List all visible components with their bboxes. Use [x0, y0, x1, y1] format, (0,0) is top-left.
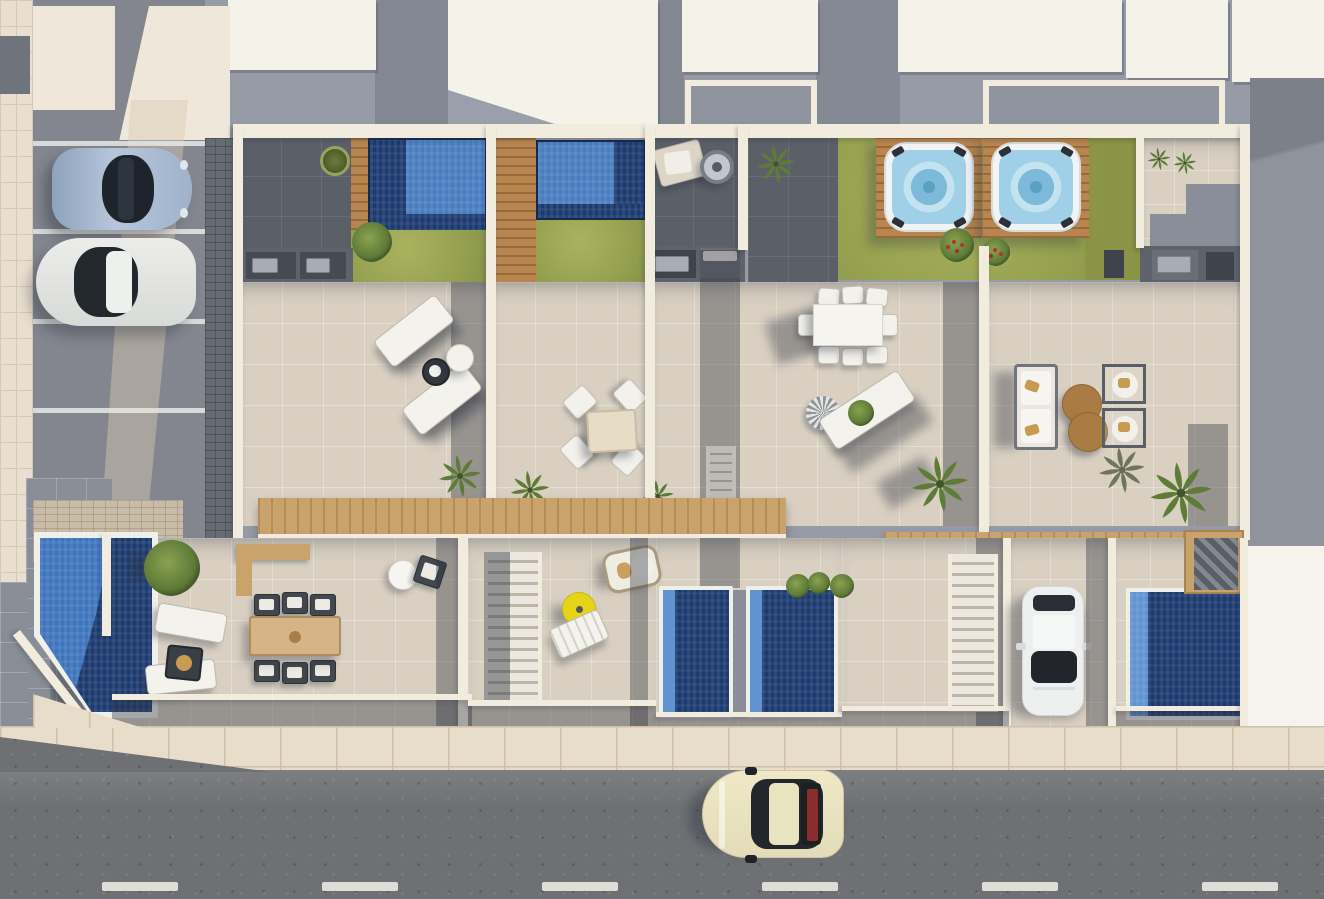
utility-box	[0, 36, 30, 94]
parapet-wall-short	[738, 124, 748, 250]
pool-sunlit-edge	[663, 590, 675, 714]
roof-gap-shadow	[656, 0, 684, 140]
car-rear-window	[1033, 595, 1075, 611]
chair-pillow	[1118, 378, 1130, 388]
lane-marking-dash	[542, 882, 618, 891]
bbq-cabinet	[1152, 250, 1198, 280]
pool-shadow-water	[538, 204, 644, 218]
car-red-panel	[807, 789, 818, 841]
car-windshield	[1031, 651, 1077, 683]
terrace-table	[586, 409, 638, 454]
plunge-pool	[1130, 592, 1240, 716]
garden-wall	[102, 532, 111, 636]
bbq-cabinet	[246, 252, 296, 279]
chair-cushion	[259, 665, 274, 676]
framed-lounge-chair	[1102, 364, 1146, 404]
bbq-grill-top	[1157, 256, 1191, 273]
framed-lounge-chair	[1102, 408, 1146, 448]
roof-gap-shadow	[375, 0, 449, 140]
chair-cushion	[315, 665, 330, 676]
corner-wood-planter	[236, 544, 252, 596]
staircase	[948, 554, 998, 712]
table-center	[712, 162, 722, 172]
pool-sunlit-edge	[750, 590, 762, 714]
pavement-light-patch	[33, 6, 115, 110]
parking-stall-line	[33, 141, 205, 146]
table-bowl	[289, 631, 301, 643]
unit2-pool-deck	[494, 136, 536, 284]
dining-chair	[866, 346, 888, 364]
outdoor-sofa	[1014, 364, 1058, 450]
south-wall-shadow	[112, 700, 472, 726]
car-headlight	[180, 160, 188, 170]
car-hood-line	[1033, 687, 1075, 690]
rose-flowers	[993, 248, 997, 252]
roof-block	[898, 0, 1122, 72]
pouf	[446, 344, 474, 372]
shrub	[352, 222, 392, 262]
roof-block	[682, 0, 818, 72]
bbq-cabinet	[300, 252, 346, 279]
dining-table-white	[813, 304, 883, 346]
chair-cushion	[287, 667, 302, 678]
palm-plant	[436, 452, 484, 500]
gray-step-paving	[1150, 214, 1240, 250]
parapet-wall	[233, 124, 243, 540]
outer-wall-lower	[1240, 538, 1248, 728]
lane-marking-dash	[1202, 882, 1278, 891]
corner-wood-stair	[1184, 530, 1244, 594]
garden-dining-chair	[254, 594, 280, 616]
hot-tub-deck	[876, 136, 982, 238]
wall-shadow-band	[700, 538, 740, 588]
chair-pillow	[1118, 422, 1130, 432]
garden-dining-chair	[310, 660, 336, 682]
lane-marking-dash	[322, 882, 398, 891]
parapet-wall	[979, 246, 989, 540]
stair-steps	[1194, 538, 1238, 590]
garden-dining-chair	[282, 662, 308, 684]
parked-sports-car	[52, 148, 192, 230]
pergola-walkway	[258, 498, 786, 536]
parapet-wall	[1240, 124, 1250, 540]
chair-cushion	[259, 599, 274, 610]
lane-marking-dash	[762, 882, 838, 891]
bbq-grill-top	[306, 258, 330, 273]
parapet-wall-short	[1136, 136, 1144, 248]
side-road-gray	[1250, 78, 1324, 564]
parking-stall-line	[33, 408, 205, 413]
driveway-white-car	[1022, 586, 1084, 716]
staircase-shade	[484, 552, 510, 706]
dining-chair	[842, 285, 865, 304]
unit1-lap-pool	[368, 138, 487, 234]
vine-planter	[830, 574, 854, 598]
garden-dining-chair	[254, 660, 280, 682]
roof-block	[1126, 0, 1228, 78]
parasol-pole	[576, 606, 583, 613]
round-planter-pot	[320, 146, 350, 176]
table-saucer	[429, 365, 441, 377]
palm-plant	[1172, 150, 1198, 176]
palm-shadow-fronds	[1096, 444, 1148, 496]
hot-tub-center-jet	[1030, 181, 1042, 193]
car-hood-highlight	[719, 781, 725, 849]
car-headlight	[180, 208, 188, 218]
hot-tub-deck	[983, 136, 1089, 238]
hot-tub-shell	[884, 142, 974, 232]
garden-wood-table	[249, 616, 341, 656]
roof-gap-shadow	[816, 0, 900, 140]
lounge-cushion	[664, 150, 692, 175]
car-roof	[1033, 615, 1075, 649]
unit2-lap-pool	[536, 140, 646, 220]
parapet-wall	[486, 124, 496, 540]
hot-tub-center-jet	[923, 181, 935, 193]
street-classic-car	[702, 770, 844, 858]
car-mirror	[1016, 643, 1026, 650]
flowering-shrub	[940, 228, 974, 262]
dining-chair	[842, 348, 864, 366]
plunge-pool	[750, 590, 834, 714]
dining-chair	[818, 346, 840, 364]
palm-plant	[1146, 146, 1172, 172]
garden-dining-chair	[310, 594, 336, 616]
parked-white-sedan	[36, 238, 196, 326]
bbq-grill-top	[252, 258, 278, 273]
bbq-cabinet	[1206, 252, 1234, 280]
garden-dining-chair	[282, 592, 308, 614]
palm-plant	[754, 142, 798, 186]
car-roof	[769, 783, 799, 845]
hot-tub-shell	[991, 142, 1081, 232]
fire-table	[164, 644, 203, 682]
garden-tree	[144, 540, 200, 596]
rose-flowers	[952, 240, 956, 244]
daybed-plant	[848, 400, 874, 426]
lane-marking-dash	[102, 882, 178, 891]
plunge-pool	[663, 590, 729, 714]
unbuilt-white-area	[1248, 546, 1324, 726]
round-roof-table	[700, 150, 734, 184]
chair-cushion	[315, 599, 330, 610]
car-roof	[106, 251, 132, 313]
parapet-wall	[645, 124, 655, 540]
palm-plant-large	[908, 452, 972, 516]
bbq-cabinet	[650, 250, 696, 278]
car-roof-bar	[118, 158, 134, 220]
vine-planter	[786, 574, 810, 598]
bbq-cabinet	[1104, 250, 1124, 278]
lane-marking-dash	[982, 882, 1058, 891]
gray-step-paving	[1186, 184, 1240, 218]
roof-block	[1232, 0, 1324, 82]
fire-bowl	[175, 654, 193, 672]
pool-sunlit-edge	[1130, 592, 1148, 716]
car-mirror	[745, 855, 757, 863]
street	[0, 770, 1324, 899]
chair-cushion	[287, 597, 302, 608]
unit2-lawn	[536, 220, 646, 282]
roof-block	[228, 0, 376, 70]
car-mirror	[745, 767, 757, 775]
bbq-sink-top	[655, 256, 689, 272]
palm-plant-large	[1146, 458, 1216, 528]
vine-planter	[808, 572, 830, 594]
gray-tiled-court	[0, 582, 28, 726]
aerial-site-render	[0, 0, 1324, 899]
